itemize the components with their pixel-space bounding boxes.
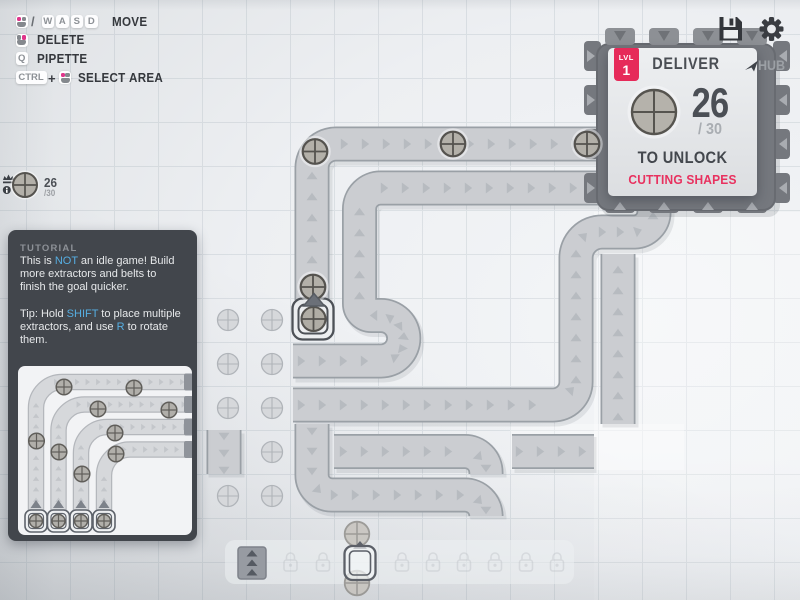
svg-text:HUB: HUB	[758, 58, 785, 73]
